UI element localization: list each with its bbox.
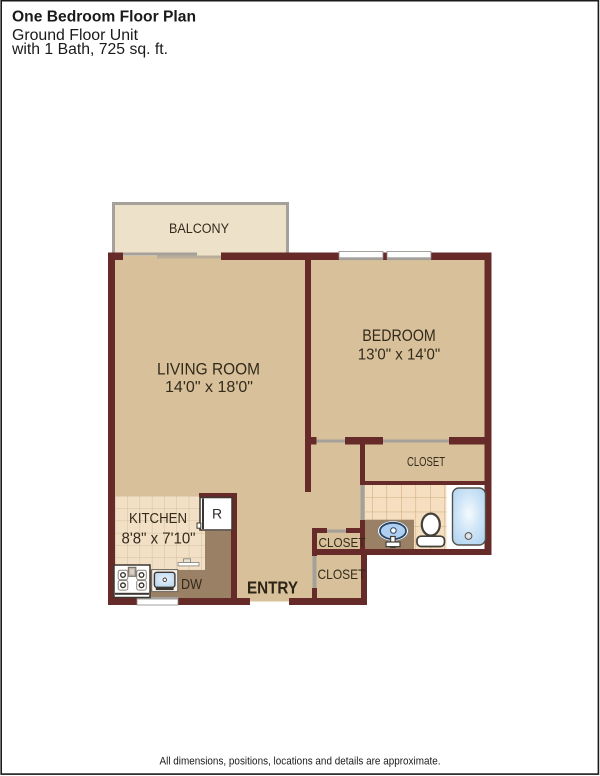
svg-text:One Bedroom Floor Plan: One Bedroom Floor Plan bbox=[12, 9, 196, 26]
svg-text:All dimensions, positions, loc: All dimensions, positions, locations and… bbox=[160, 756, 441, 768]
svg-text:BALCONY: BALCONY bbox=[169, 221, 229, 236]
svg-text:13'0" x 14'0": 13'0" x 14'0" bbox=[358, 347, 441, 364]
svg-text:DW: DW bbox=[181, 576, 203, 593]
svg-text:with 1 Bath, 725 sq. ft.: with 1 Bath, 725 sq. ft. bbox=[11, 41, 168, 58]
svg-text:CLOSET: CLOSET bbox=[318, 566, 366, 582]
svg-text:KITCHEN: KITCHEN bbox=[129, 510, 187, 527]
svg-text:14'0" x 18'0": 14'0" x 18'0" bbox=[165, 379, 253, 396]
svg-text:CLOSET: CLOSET bbox=[319, 536, 366, 550]
svg-text:8'8" x 7'10": 8'8" x 7'10" bbox=[122, 531, 196, 548]
svg-text:CLOSET: CLOSET bbox=[407, 454, 445, 469]
svg-text:BEDROOM: BEDROOM bbox=[362, 327, 436, 345]
svg-text:R: R bbox=[212, 506, 222, 522]
svg-text:LIVING ROOM: LIVING ROOM bbox=[157, 361, 260, 379]
svg-text:ENTRY: ENTRY bbox=[247, 578, 298, 598]
